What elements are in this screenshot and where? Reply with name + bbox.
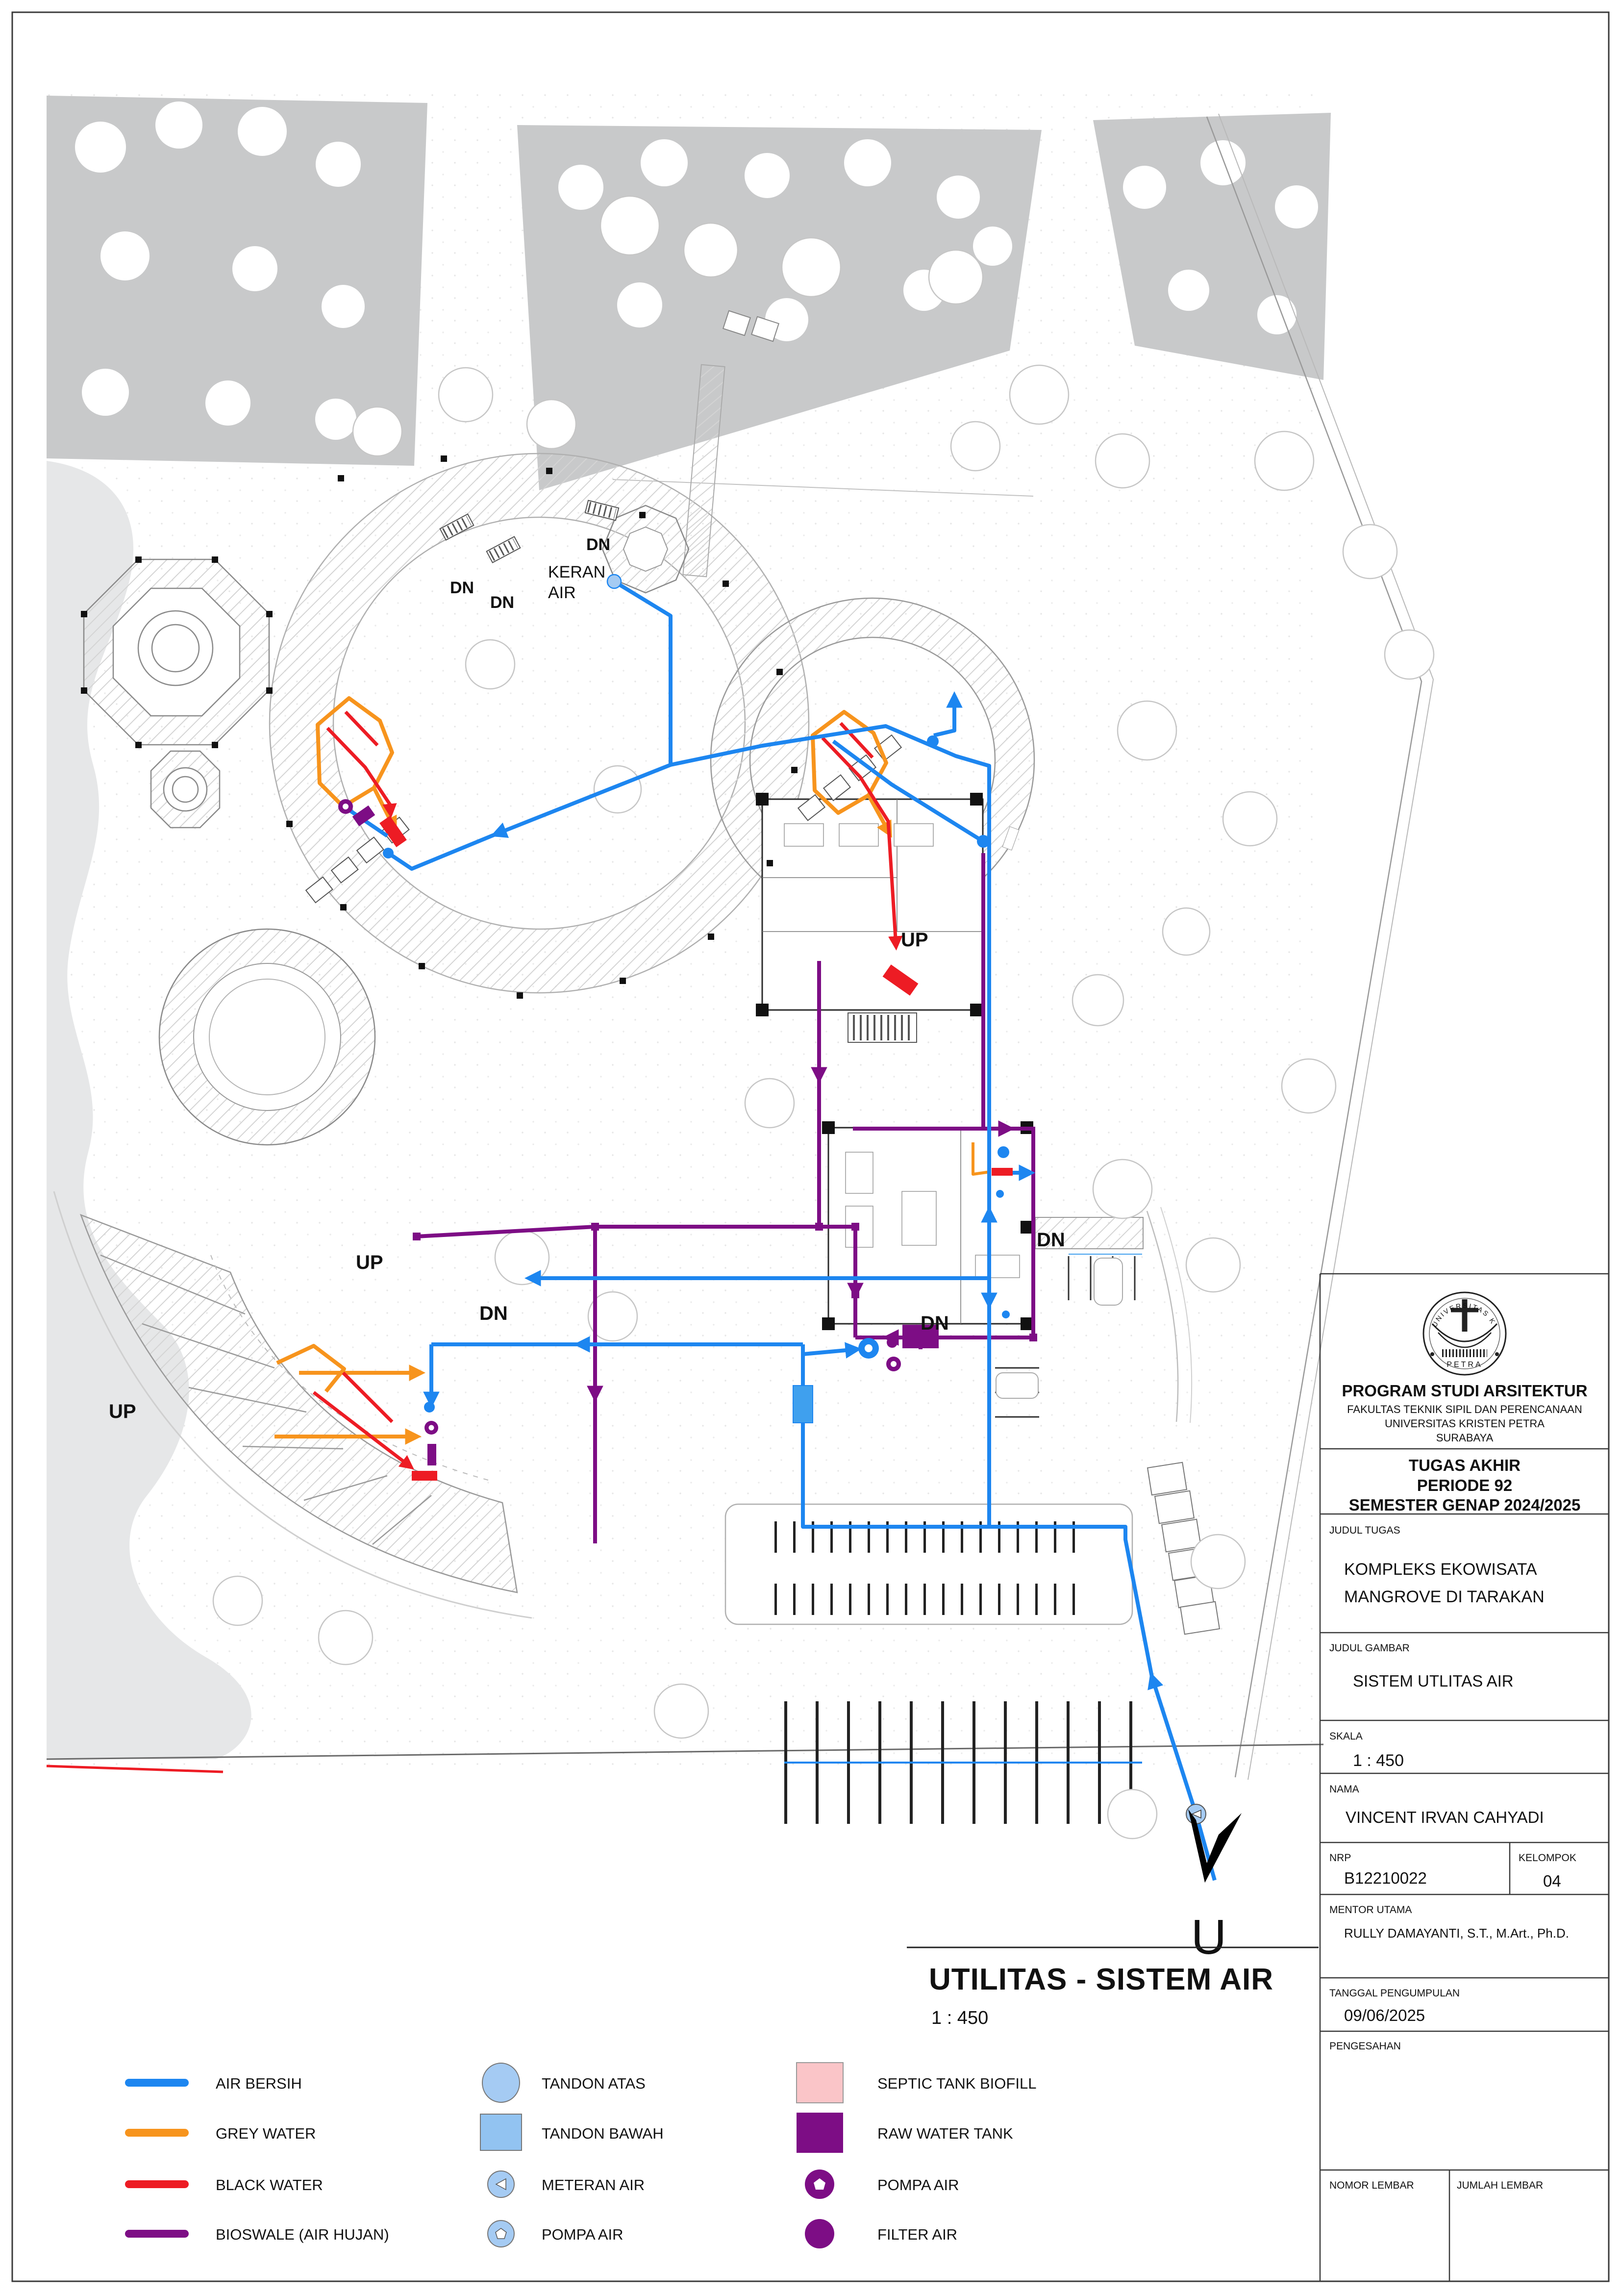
judul-gambar-label: JUDUL GAMBAR: [1329, 1642, 1410, 1654]
north-letter: U: [1191, 1910, 1226, 1965]
legend-label: POMPA AIR: [542, 2226, 623, 2243]
dn-label: DN: [450, 579, 474, 597]
mentor-value: RULLY DAMAYANTI, S.T., M.Art., Ph.D.: [1344, 1926, 1569, 1941]
pompa-air-plan-symbols: [858, 1338, 879, 1359]
septic-tank-biofill-icon: [797, 2063, 843, 2103]
skala-label: SKALA: [1329, 1731, 1363, 1742]
octagon-deck-large: [84, 559, 269, 745]
dn-label: DN: [921, 1312, 949, 1334]
periode: PERIODE 92: [1417, 1476, 1512, 1494]
tugas-akhir: TUGAS AKHIR: [1409, 1456, 1521, 1474]
legend-label: METERAN AIR: [542, 2176, 645, 2194]
legend-label: RAW WATER TANK: [877, 2125, 1013, 2142]
kelompok-value: 04: [1543, 1872, 1561, 1890]
tandon-bawah-symbol: [793, 1386, 813, 1423]
dn-label: DN: [490, 593, 514, 612]
legend-label: BLACK WATER: [216, 2176, 323, 2194]
nama-value: VINCENT IRVAN CAHYADI: [1346, 1808, 1544, 1826]
legend-label: AIR BERSIH: [216, 2075, 302, 2092]
dn-label: DN: [479, 1303, 508, 1324]
legend-label: GREY WATER: [216, 2125, 316, 2142]
nrp-label: NRP: [1329, 1852, 1351, 1864]
dn-label: DN: [586, 535, 610, 554]
program-studi: PROGRAM STUDI ARSITEKTUR: [1342, 1382, 1587, 1400]
raw-water-tank-icon: [797, 2113, 843, 2153]
nomor-lembar-label: NOMOR LEMBAR: [1329, 2180, 1414, 2191]
pengesahan-label: PENGESAHAN: [1329, 2041, 1401, 2052]
up-label: UP: [356, 1252, 383, 1273]
keran-air-line1: KERAN: [548, 563, 605, 581]
logo-text-bottom: PETRA: [1446, 1361, 1482, 1369]
legend-label: TANDON BAWAH: [542, 2125, 664, 2142]
nrp-value: B12210022: [1344, 1869, 1427, 1887]
nama-label: NAMA: [1329, 1784, 1359, 1795]
fakultas: FAKULTAS TEKNIK SIPIL DAN PERENCANAAN: [1347, 1403, 1582, 1415]
legend-swatch-air-bersih: [125, 2079, 189, 2087]
amphitheater-deck: [159, 929, 375, 1145]
drawing-title: UTILITAS - SISTEM AIR: [929, 1963, 1273, 1996]
legend-label: BIOSWALE (AIR HUJAN): [216, 2226, 389, 2243]
drawing-scale: 1 : 450: [931, 2008, 988, 2028]
semester: SEMESTER GENAP 2024/2025: [1349, 1496, 1581, 1514]
universitas: UNIVERSITAS KRISTEN PETRA: [1385, 1417, 1545, 1430]
tandon-bawah-icon: [480, 2114, 522, 2150]
central-building: [762, 799, 983, 1042]
kota: SURABAYA: [1436, 1432, 1494, 1444]
legend-swatch-black-water: [125, 2180, 189, 2188]
mentor-label: MENTOR UTAMA: [1329, 1904, 1412, 1916]
legend-label: FILTER AIR: [877, 2226, 957, 2243]
keran-air-symbol: [607, 575, 621, 588]
legend-label: TANDON ATAS: [542, 2075, 646, 2092]
legend-swatch-grey-water: [125, 2129, 189, 2137]
up-label: UP: [901, 929, 928, 951]
jumlah-lembar-label: JUMLAH LEMBAR: [1457, 2180, 1543, 2191]
legend-label: POMPA AIR: [877, 2176, 959, 2194]
legend-label: SEPTIC TANK BIOFILL: [877, 2075, 1036, 2092]
dn-label: DN: [1037, 1229, 1065, 1251]
drawing-sheet: DN DN DN DN DN DN UP UP UP KERAN AIR U U…: [0, 0, 1621, 2294]
judul-tugas-label: JUDUL TUGAS: [1329, 1525, 1400, 1536]
keran-air-line2: AIR: [548, 583, 576, 602]
judul-gambar: SISTEM UTLITAS AIR: [1353, 1672, 1514, 1690]
site-plan-svg: DN DN DN DN DN DN UP UP UP KERAN AIR U U…: [0, 0, 1621, 2294]
kelompok-label: KELOMPOK: [1519, 1852, 1576, 1864]
skala-value: 1 : 450: [1353, 1751, 1404, 1770]
octagon-deck-small: [151, 751, 220, 828]
tanggal-value: 09/06/2025: [1344, 2006, 1425, 2024]
judul-tugas-line2: MANGROVE DI TARAKAN: [1344, 1588, 1545, 1606]
tanggal-label: TANGGAL PENGUMPULAN: [1329, 1988, 1460, 1999]
judul-tugas-line1: KOMPLEKS EKOWISATA: [1344, 1560, 1537, 1579]
tandon-atas-icon: [482, 2063, 520, 2102]
up-label: UP: [109, 1401, 136, 1422]
legend-swatch-bioswale: [125, 2230, 189, 2238]
filter-air-icon: [805, 2219, 834, 2248]
